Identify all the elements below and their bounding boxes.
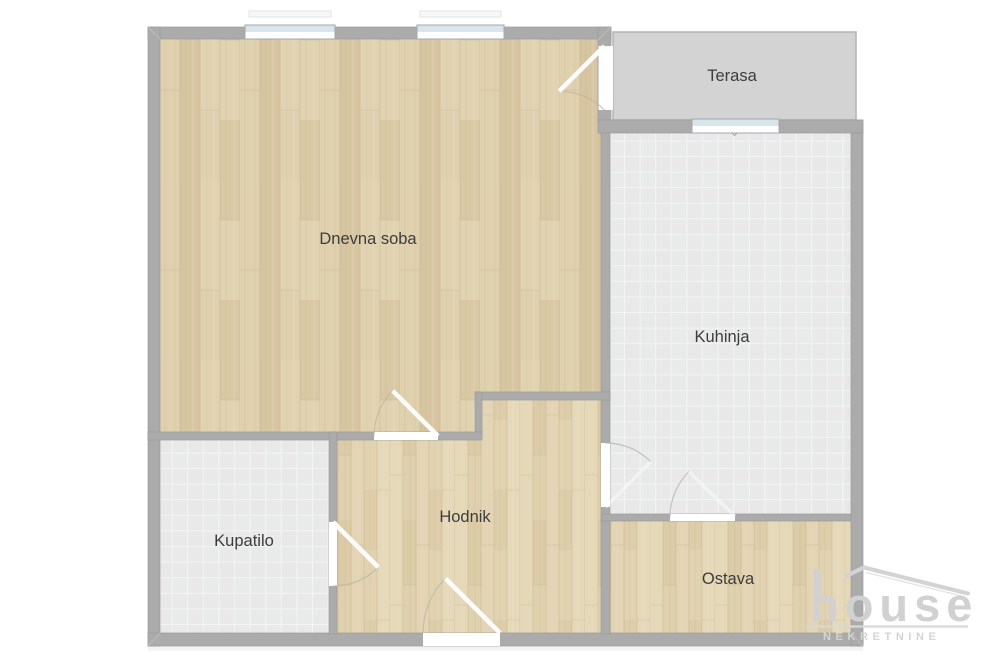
svg-text:Ostava: Ostava — [702, 570, 755, 588]
svg-text:NEKRETNINE: NEKRETNINE — [823, 631, 941, 643]
svg-text:Hodnik: Hodnik — [439, 508, 491, 526]
svg-text:house: house — [810, 578, 978, 631]
svg-text:Dnevna soba: Dnevna soba — [319, 230, 417, 248]
svg-text:Terasa: Terasa — [707, 67, 757, 85]
svg-text:Kuhinja: Kuhinja — [694, 328, 750, 346]
svg-text:Kupatilo: Kupatilo — [214, 532, 274, 550]
